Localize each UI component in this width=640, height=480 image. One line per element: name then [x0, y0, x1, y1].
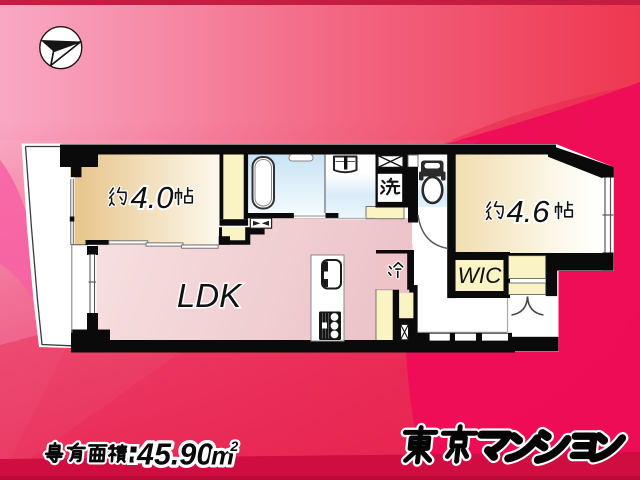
svg-text:LDK: LDK — [177, 277, 243, 314]
svg-text:45.90: 45.90 — [136, 438, 213, 472]
svg-text:4.6: 4.6 — [506, 194, 550, 229]
svg-text:2: 2 — [230, 438, 239, 454]
svg-text:WIC: WIC — [458, 263, 502, 288]
svg-text:4.0: 4.0 — [130, 180, 173, 215]
